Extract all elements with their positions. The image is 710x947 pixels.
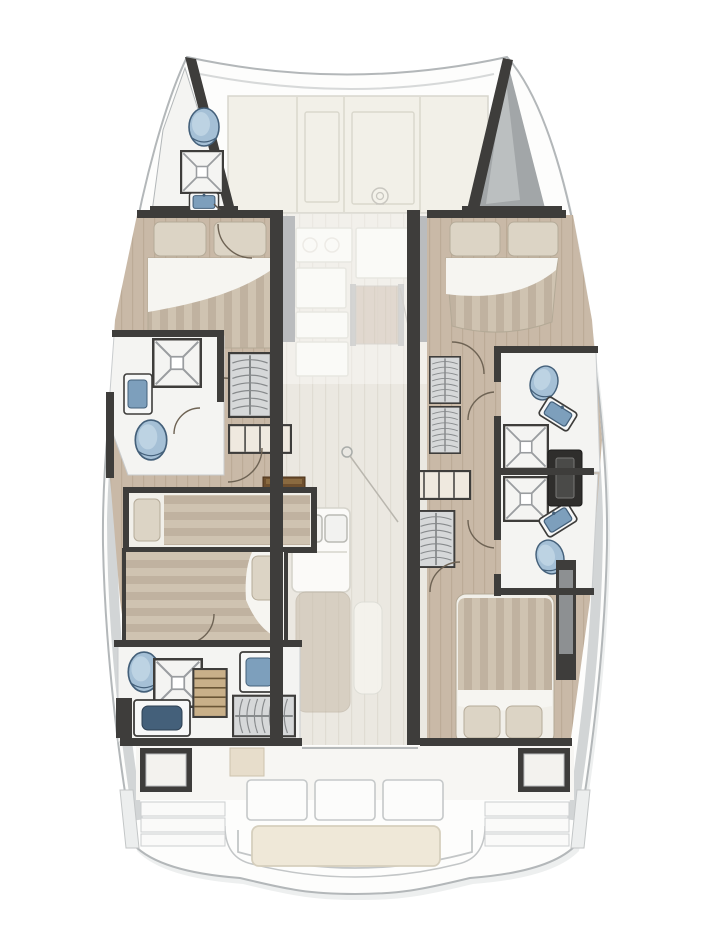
cockpit-cabinet — [140, 748, 192, 792]
mast-post — [342, 447, 352, 457]
wardrobe — [229, 353, 271, 417]
pillow — [508, 222, 558, 256]
wall — [420, 738, 572, 746]
foredeck-lounge: Foredeck lounge — [228, 96, 488, 213]
bulkhead — [427, 210, 566, 218]
starboard-hull: Forward cabin, double berth (starboard) … — [407, 210, 602, 746]
sink-icon — [124, 374, 152, 414]
toilet-icon — [135, 420, 166, 460]
hull-steps — [193, 669, 226, 717]
wall — [106, 392, 114, 478]
pillow — [464, 706, 500, 738]
wall — [494, 346, 598, 353]
foredeck-panel — [228, 96, 488, 213]
wall — [120, 738, 302, 746]
cockpit-cabinet — [518, 748, 570, 792]
wall — [494, 468, 594, 475]
catamaran-floor-plan: catamaran-yacht-layout-top-view Foredeck… — [0, 0, 710, 947]
anchor-winch-icon — [372, 188, 388, 204]
wall — [112, 330, 224, 337]
shower-icon — [153, 339, 201, 387]
transom-steps-starboard — [485, 802, 569, 846]
cabinet — [116, 698, 132, 738]
seat-back-panel — [383, 780, 443, 820]
berth-duvet — [164, 495, 310, 545]
cockpit-locker — [230, 748, 264, 776]
pillow — [450, 222, 500, 256]
wardrobe — [430, 407, 460, 453]
pillow — [154, 222, 206, 256]
ghost-seat — [354, 602, 382, 694]
shower-icon — [504, 477, 548, 521]
inner-hull-wall — [407, 210, 420, 745]
transom-steps-port — [141, 802, 225, 846]
wall — [114, 640, 302, 647]
door-opening — [494, 540, 501, 574]
wall — [494, 588, 594, 595]
sink-icon — [134, 700, 190, 736]
floor-plan-canvas: catamaran-yacht-layout-top-view Foredeck… — [0, 0, 710, 947]
inner-hull-wall — [270, 210, 283, 745]
shower-icon — [181, 151, 223, 193]
bathroom-cabinet — [548, 450, 582, 506]
toilet-icon — [189, 108, 219, 146]
wall — [217, 330, 224, 402]
wardrobe — [418, 511, 455, 567]
sink-basin-icon — [325, 515, 347, 542]
wardrobe — [233, 696, 295, 737]
transom-bench — [252, 826, 440, 866]
salon-fade — [283, 214, 427, 384]
shower-icon — [504, 425, 548, 469]
wardrobe — [430, 357, 460, 403]
seat-back-panel — [315, 780, 375, 820]
port-aft-cabin: Aft cabins, single + double berth (port) — [124, 477, 314, 644]
port-hull: Forward cabin, double berth (port) Mid b… — [106, 210, 314, 746]
locker — [559, 570, 573, 654]
bulkhead — [137, 210, 283, 218]
ghost-table — [296, 592, 350, 712]
pillow — [506, 706, 542, 738]
pillow — [134, 499, 160, 541]
door-opening — [494, 382, 501, 416]
berth-duvet — [458, 598, 552, 702]
seat-back-panel — [247, 780, 307, 820]
sink-icon — [189, 193, 218, 211]
